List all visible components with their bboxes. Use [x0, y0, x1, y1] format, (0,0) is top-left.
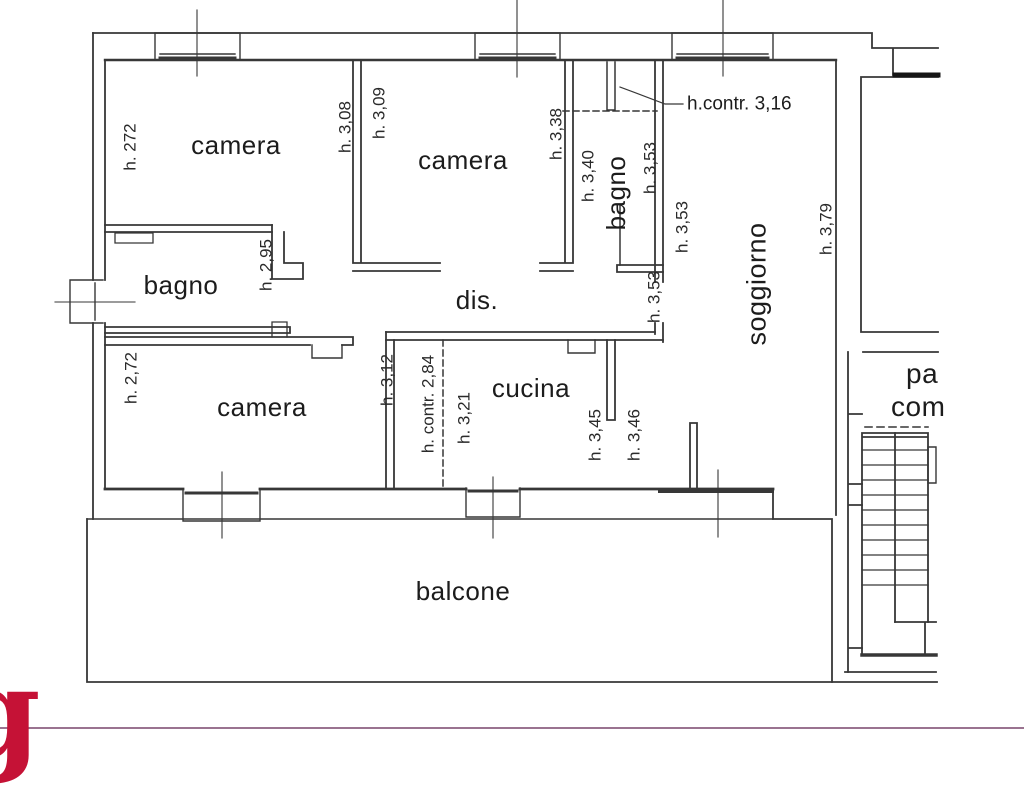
height-camera-top-left: h. 272 — [122, 123, 139, 170]
height-soggiorno-lower-left: h. 3,53 — [646, 271, 663, 323]
stairwell-left-wall — [848, 352, 862, 672]
wall-partial-lower — [690, 423, 697, 489]
room-label-common-area-line2: com — [891, 393, 945, 421]
room-label-camera-bottom-left: camera — [217, 394, 307, 420]
height-soggiorno-bottom: h. 3,46 — [626, 409, 643, 461]
room-label-camera-top-mid: camera — [418, 147, 508, 173]
staircase-landing — [895, 622, 936, 655]
bagno-top-stub-upper — [607, 62, 615, 110]
floor-plan-page: camera camera bagno soggiorno bagno dis.… — [0, 0, 1024, 768]
room-label-camera-top-left: camera — [191, 132, 281, 158]
height-bagno-top-left: h. 3,40 — [580, 150, 597, 202]
footer-divider-line — [0, 727, 1024, 729]
height-cucina-left: h. 3,21 — [456, 392, 473, 444]
bottom-wall-right-step — [773, 489, 832, 682]
height-soggiorno-upper-left: h. 3,53 — [674, 201, 691, 253]
staircase-side-rect — [928, 447, 936, 483]
height-camera-top-left-right: h. 3,08 — [337, 101, 354, 153]
wall-cucina-soggiorno-stub — [607, 340, 615, 420]
camera3-door-notch — [312, 345, 342, 358]
ceiling-leader-line — [620, 87, 683, 104]
room-label-disimpegno: dis. — [456, 287, 498, 313]
height-bagno-left: h. 2,95 — [258, 239, 275, 291]
height-bagno-top-right: h. 3,53 — [642, 142, 659, 194]
room-label-soggiorno: soggiorno — [744, 222, 771, 345]
height-cucina-right: h. 3,45 — [587, 409, 604, 461]
bagno-left-shelf — [115, 233, 153, 243]
agency-logo-glyph: g — [0, 652, 41, 776]
room-label-bagno-left: bagno — [144, 272, 219, 298]
room-label-cucina: cucina — [492, 375, 570, 401]
height-camera-top-mid-left: h. 3,09 — [371, 87, 388, 139]
camera1-bottom-wall — [105, 225, 272, 232]
height-soggiorno-right: h. 3,79 — [818, 203, 835, 255]
height-cucina-ceiling-note: h. contr. 2,84 — [420, 355, 437, 453]
room-label-bagno-top: bagno — [603, 156, 629, 231]
height-camera-top-mid-right: h. 3,38 — [548, 108, 565, 160]
bagno-left-hook-wall — [272, 225, 303, 279]
shaft-room — [861, 77, 938, 332]
room-label-balcone: balcone — [416, 578, 511, 604]
balcone-outline — [87, 519, 937, 682]
cucina-top-notch — [568, 340, 595, 353]
height-ceiling-note-top: h.contr. 3,16 — [687, 95, 792, 114]
cucina-top-wall — [386, 332, 663, 340]
wall-camera2-bagno — [540, 60, 573, 271]
camera3-top-wall — [105, 337, 353, 345]
corridor-pilaster — [272, 322, 287, 337]
bagno-left-bottom-wall — [105, 327, 290, 333]
height-camera-bottom-left: h. 2,72 — [123, 352, 140, 404]
height-camera-bottom-right: h. 3,12 — [379, 354, 396, 406]
room-label-common-area-line1: pa — [906, 360, 938, 388]
